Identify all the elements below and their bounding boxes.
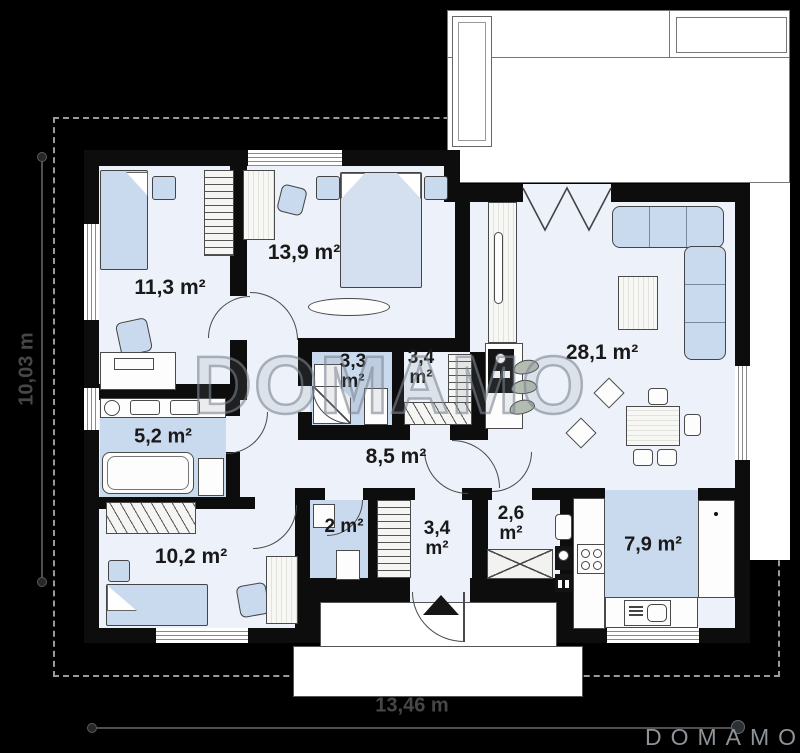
sink-icon (130, 400, 160, 415)
storage-bench-icon (487, 549, 553, 579)
window (607, 628, 699, 643)
height-dimension-line (41, 157, 43, 582)
porch-step-lower (293, 646, 583, 697)
window (248, 150, 342, 166)
dresser-icon (308, 298, 390, 316)
room-label-bedroom-1: 11,3 m² (134, 276, 205, 300)
wardrobe-icon (106, 502, 196, 534)
armchair-icon (115, 317, 153, 357)
chair-icon (648, 388, 668, 405)
dining-table-icon (626, 406, 680, 446)
terrace-side-strip (750, 183, 790, 560)
terrace-line (447, 57, 790, 58)
room-label-vestibule: 2,6 m² (487, 504, 535, 544)
counter-dot (714, 512, 718, 516)
dimension-dot (37, 577, 47, 587)
sofa-corner-icon (612, 206, 724, 248)
closet-icon (377, 500, 411, 578)
floor-plan: 11,3 m² 13,9 m² 3,3 m² 3,4 m² 28,1 m² 5,… (0, 0, 800, 753)
desk-items-icon (114, 358, 154, 370)
kitchen-sink-icon (624, 600, 671, 626)
watermark: DOMAMO (193, 339, 588, 433)
room-label-kitchen: 7,9 m² (624, 534, 682, 557)
terrace-line (669, 10, 670, 57)
wardrobe-icon (204, 170, 234, 256)
room-label-hall: 8,5 m² (366, 445, 427, 469)
wall (698, 488, 735, 500)
pillow-icon (108, 560, 130, 582)
brand-logo: DOMAMO (645, 724, 800, 751)
wall (363, 488, 415, 500)
window (84, 224, 99, 320)
coffee-table-icon (618, 276, 658, 330)
desk-icon (243, 170, 275, 240)
chair-icon (684, 414, 701, 436)
wall (455, 184, 470, 352)
bathtub-inner (107, 456, 189, 490)
round-basin-icon (104, 400, 120, 416)
window (84, 388, 99, 430)
entrance-arrow-icon (423, 595, 459, 615)
desk-icon (266, 556, 298, 624)
terrace-skylight (676, 17, 787, 53)
sofa-corner-icon (684, 246, 726, 360)
wall (472, 500, 488, 578)
room-label-wardrobe-2: 3,4 m² (413, 519, 461, 559)
height-dimension-label: 10,03 m (16, 332, 39, 405)
room-label-bedroom-2: 13,9 m² (268, 241, 340, 265)
boiler-icon (555, 514, 572, 540)
room-label-bathroom-2: 5,2 m² (134, 426, 192, 449)
nightstand-icon (316, 176, 340, 200)
dimension-dot (87, 723, 97, 733)
cabinet-icon (198, 458, 224, 496)
chair-icon (633, 449, 653, 466)
toilet-icon (336, 550, 360, 580)
chair-icon (657, 449, 677, 466)
room-label-bedroom-3: 10,2 m² (155, 545, 227, 569)
wall (226, 452, 240, 498)
flue-icon (494, 232, 503, 304)
nightstand-icon (424, 176, 448, 200)
hob-icon (577, 544, 605, 574)
terrace-door-icon (521, 184, 613, 234)
width-dimension-line (92, 727, 738, 729)
width-dimension-label: 13,46 m (375, 695, 448, 718)
chimney-inner (458, 22, 486, 141)
window (156, 628, 248, 643)
washing-machine-icon (555, 546, 572, 570)
bed-double-icon (340, 172, 422, 288)
appliance-icon (555, 574, 572, 592)
nightstand-icon (152, 176, 176, 200)
wall (295, 488, 325, 500)
room-label-wc: 2 m² (324, 516, 363, 538)
dimension-dot (37, 152, 47, 162)
window (735, 366, 750, 460)
